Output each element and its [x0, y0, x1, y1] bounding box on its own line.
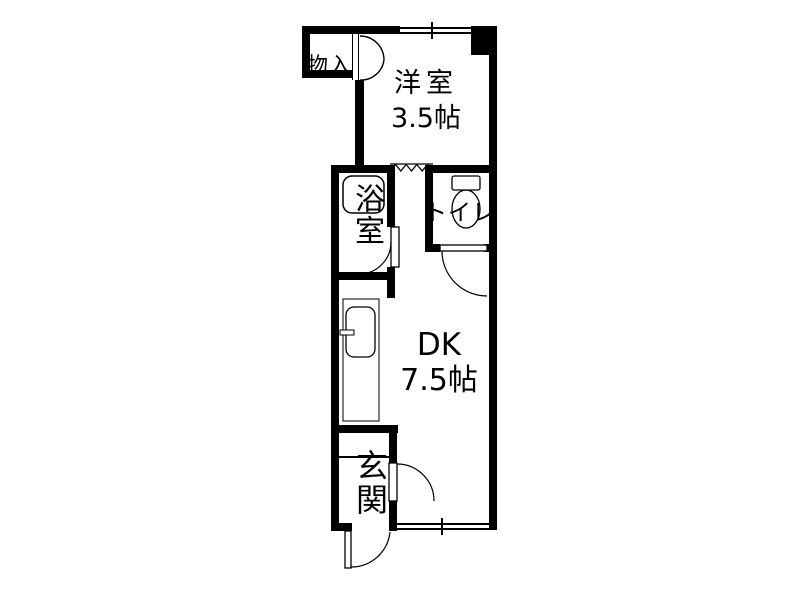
- wall-divider-right: [433, 165, 490, 173]
- bottom-window-inner-line: [397, 528, 489, 530]
- wall-entrance-bottom: [331, 523, 352, 531]
- wall-divider-left: [331, 165, 390, 173]
- wall-toilet-bottom-right: [484, 244, 490, 252]
- wall-pillar-top-right: [471, 26, 497, 55]
- floor-plan: 物入 洋室 3.5帖 浴室 トイレ DK 7.5帖 玄関: [0, 0, 800, 600]
- bath-label: 浴室: [344, 183, 388, 247]
- bottom-window-outer-line: [397, 523, 489, 525]
- western-room-size: 3.5帖: [363, 101, 489, 136]
- kitchen-faucet: [340, 330, 354, 335]
- front-door-arc: [351, 532, 390, 567]
- western-room-label: 洋室 3.5帖: [363, 66, 489, 136]
- wall-bath-bottom: [331, 272, 395, 280]
- bath-door-leaf: [391, 227, 399, 267]
- wall-right: [489, 55, 497, 530]
- toilet-label: トイレ: [421, 193, 499, 227]
- toilet-door-arc: [442, 251, 487, 296]
- front-door-leaf: [345, 531, 351, 568]
- toilet-tank: [452, 176, 480, 190]
- bottom-window-tick: [441, 518, 443, 535]
- wall-top: [302, 26, 400, 34]
- closet-door-arc-top: [360, 36, 384, 60]
- entrance-label: 玄関: [347, 449, 393, 517]
- dk-size: 7.5帖: [379, 363, 499, 398]
- toilet-door-leaf: [440, 245, 487, 251]
- kitchen-sink: [346, 307, 375, 357]
- wall-toilet-bottom-left: [425, 244, 440, 252]
- top-window-inner-line: [400, 32, 471, 34]
- wall-dk-left: [331, 280, 339, 425]
- top-window-tick: [431, 22, 433, 39]
- dk-label: DK 7.5帖: [379, 328, 499, 398]
- entrance-hall-door-arc: [397, 464, 434, 501]
- wall-bath-left: [331, 165, 339, 280]
- top-window-outer-line: [400, 27, 471, 29]
- closet-label: 物入: [300, 48, 358, 80]
- western-room-name: 洋室: [363, 66, 489, 101]
- dk-name: DK: [379, 328, 499, 363]
- wall-entrance-left: [331, 433, 339, 531]
- wall-bath-right-upper: [387, 165, 395, 227]
- kitchen-counter: [343, 299, 379, 421]
- wall-entrance-top: [331, 425, 398, 433]
